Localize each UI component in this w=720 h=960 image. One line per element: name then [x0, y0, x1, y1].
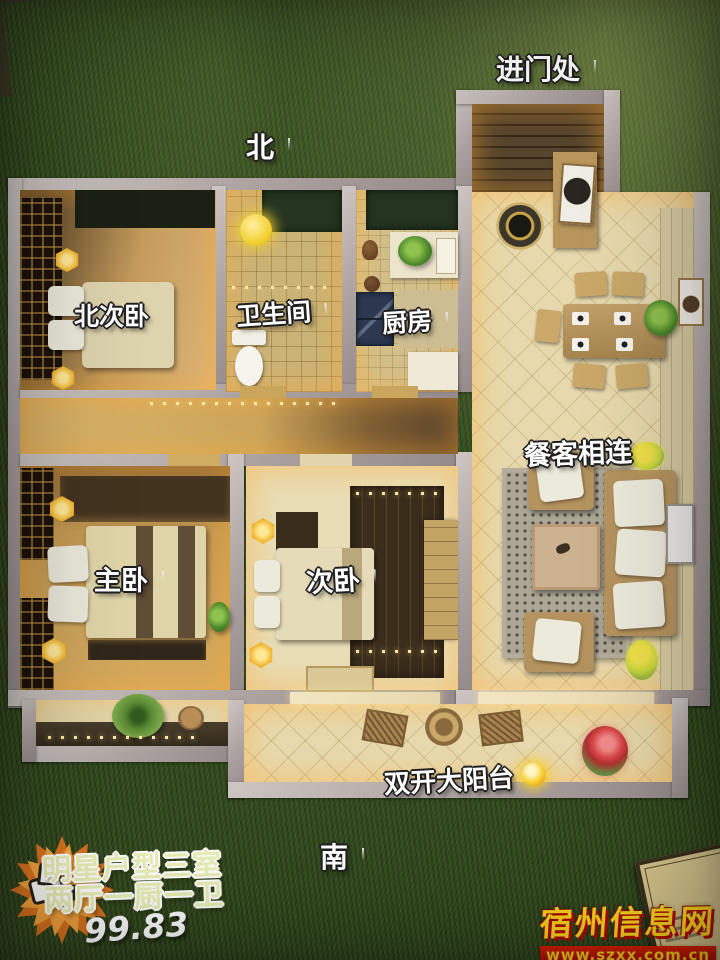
floorplan-model-photo: 进门处 北 北次卧 卫生间 厨房 餐客相连 主卧 次卧 双开大阳台 南: [0, 0, 720, 960]
sofa-cushion: [613, 479, 665, 528]
lattice-screen: [20, 468, 54, 560]
coffee-table: [532, 524, 600, 590]
place-setting: [572, 312, 589, 325]
place-setting: [572, 338, 589, 351]
wall: [694, 192, 710, 706]
wall: [456, 90, 472, 194]
label-bathroom: 卫生间: [235, 291, 336, 334]
potted-plant: [644, 300, 678, 336]
label-master-bedroom: 主卧: [94, 559, 172, 598]
red-pushpin-icon: [367, 557, 384, 584]
room-north-bedroom: [20, 190, 216, 390]
armchair-cushion: [532, 618, 582, 665]
wall: [604, 90, 620, 206]
wall: [22, 744, 234, 762]
toilet-bowl: [235, 346, 263, 386]
headboard: [276, 512, 318, 552]
doorway: [300, 454, 352, 466]
bed-runner: [178, 526, 195, 638]
kitchen-sink: [436, 238, 456, 274]
light-string: [356, 650, 442, 653]
label-kitchen: 厨房: [381, 299, 457, 340]
lantern-lamp: [248, 642, 274, 668]
doorway: [240, 386, 286, 398]
round-rug: [494, 200, 546, 252]
red-pushpin-icon: [318, 291, 336, 318]
appliance: [408, 352, 458, 390]
wall: [456, 186, 472, 392]
tv-screen: [666, 504, 694, 564]
red-pushpin-icon: [356, 836, 372, 862]
kitchen-window: [366, 190, 458, 230]
floor-medallion: [420, 706, 468, 748]
wardrobe: [424, 520, 458, 640]
bathroom-label-text: 卫生间: [235, 292, 312, 333]
label-south: 南: [320, 836, 372, 876]
pillow: [47, 585, 88, 622]
label-entrance: 进门处: [496, 48, 604, 88]
doorway: [168, 454, 220, 466]
red-pushpin-icon: [439, 299, 457, 326]
corridor-floor: [20, 398, 458, 454]
dining-chair: [611, 271, 644, 297]
north-bedroom-label-text: 北次卧: [74, 297, 149, 333]
potted-plant: [398, 236, 432, 266]
dining-chair: [572, 363, 606, 390]
promo-area: 99.83: [83, 904, 190, 950]
entrance-label-text: 进门处: [496, 48, 580, 88]
watermark-site-name: 宿州信息网: [538, 894, 718, 945]
storage-jar: [364, 276, 380, 292]
dining-chair: [615, 363, 649, 390]
foot-bench: [88, 640, 206, 660]
pillow: [47, 545, 89, 583]
potted-plant: [208, 602, 230, 632]
headboard-wall: [60, 476, 230, 522]
label-north: 北: [246, 126, 298, 166]
storage-jar: [362, 240, 378, 260]
ceiling-light: [240, 214, 272, 246]
light-string: [150, 402, 340, 405]
balcony-label-text: 双开大阳台: [383, 757, 515, 801]
wall: [456, 452, 472, 692]
yellow-flowers: [626, 640, 658, 680]
display-frame-corner: [0, 0, 96, 98]
south-label-text: 南: [320, 836, 348, 876]
red-pushpin-icon: [156, 559, 172, 585]
light-string: [232, 286, 336, 289]
label-dining-living: 餐客相连: [523, 430, 632, 473]
second-bedroom-label-text: 次卧: [305, 558, 361, 600]
framed-art: [558, 163, 596, 225]
wall: [456, 90, 620, 104]
pillow: [254, 560, 280, 592]
pillow: [254, 596, 280, 628]
watermark: 宿州信息网 www.szxx.com.cn: [540, 896, 716, 960]
place-setting: [616, 338, 633, 351]
place-setting: [614, 312, 631, 325]
north-label-text: 北: [246, 126, 274, 166]
dining-chair: [534, 309, 561, 343]
wall-frame: [678, 278, 704, 326]
label-second-bedroom: 次卧: [305, 557, 385, 600]
doorway: [372, 386, 418, 398]
sofa-cushion: [612, 580, 665, 629]
bathroom-window: [262, 190, 342, 232]
side-balcony-floor: [36, 700, 228, 746]
door-rug: [306, 666, 374, 692]
light-string: [356, 492, 442, 495]
watermark-url-bar: www.szxx.com.cn: [540, 946, 716, 960]
room-kitchen: [356, 190, 458, 392]
yellow-flowers: [630, 442, 664, 470]
sofa-cushion: [614, 528, 667, 577]
rattan-stool: [362, 709, 409, 748]
master-bedroom-label-text: 主卧: [94, 559, 148, 598]
red-pushpin-icon: [282, 126, 298, 152]
wall: [22, 700, 36, 762]
dining-chair: [574, 271, 608, 297]
promo-badge: 明星户型三室 两厅一厨一卫 99.83: [0, 828, 280, 958]
kitchen-label-text: 厨房: [381, 301, 433, 340]
label-north-bedroom: 北次卧: [74, 297, 149, 333]
balcony-glass-door: [290, 692, 440, 704]
sun-icon: [521, 762, 546, 787]
watermark-site-url: www.szxx.com.cn: [546, 946, 710, 960]
wall: [672, 698, 688, 798]
wall: [342, 186, 356, 398]
balcony-glass-door: [478, 692, 654, 704]
headboard-wall: [75, 190, 215, 228]
red-flower-plant: [582, 726, 628, 776]
palm-plant: [112, 694, 164, 738]
rattan-stool: [478, 710, 524, 747]
wall: [228, 452, 244, 704]
round-mat: [178, 706, 204, 730]
lantern-lamp: [250, 518, 276, 544]
light-string: [48, 736, 204, 739]
dining-living-label-text: 餐客相连: [523, 430, 632, 473]
red-pushpin-icon: [588, 48, 604, 74]
